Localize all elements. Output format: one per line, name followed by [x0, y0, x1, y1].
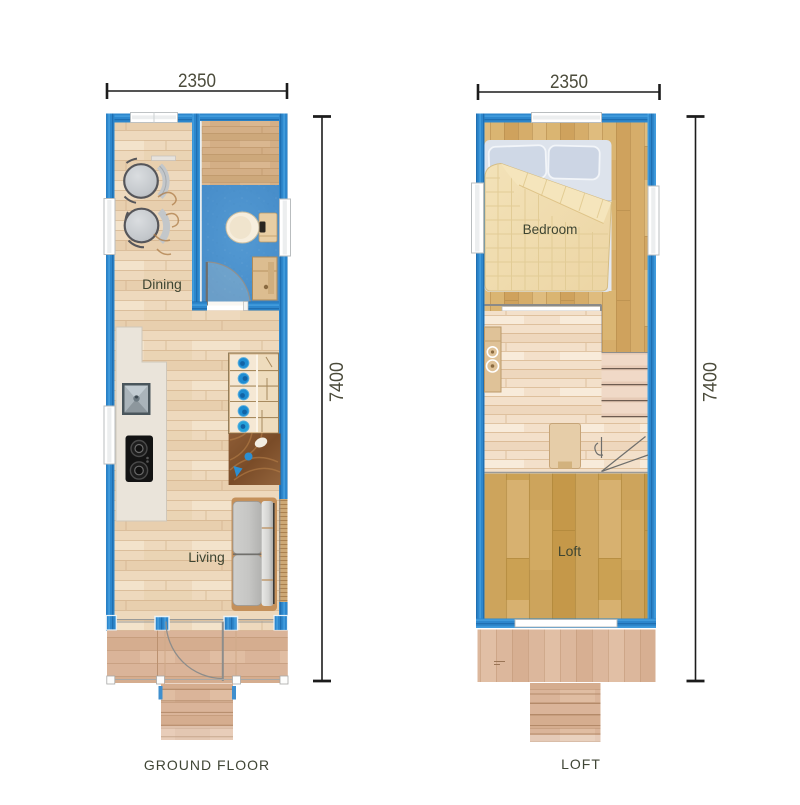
- svg-text:7400: 7400: [701, 362, 722, 402]
- svg-text:7400: 7400: [327, 362, 348, 402]
- svg-text:2350: 2350: [550, 72, 588, 93]
- svg-text:Living: Living: [188, 549, 225, 565]
- svg-text:Loft: Loft: [558, 543, 581, 559]
- svg-text:LOFT: LOFT: [561, 756, 601, 772]
- svg-text:GROUND FLOOR: GROUND FLOOR: [144, 757, 270, 773]
- svg-text:Bedroom: Bedroom: [523, 222, 578, 237]
- svg-text:2350: 2350: [178, 71, 216, 92]
- svg-text:Dining: Dining: [142, 276, 182, 292]
